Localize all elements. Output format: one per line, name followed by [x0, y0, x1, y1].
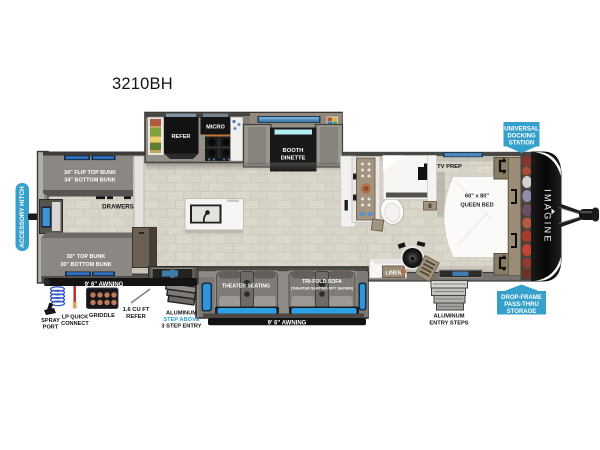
svg-text:ACCESSORY HITCH: ACCESSORY HITCH — [19, 186, 26, 248]
svg-text:60" x 80": 60" x 80" — [465, 194, 489, 200]
svg-text:LP QUICK: LP QUICK — [62, 315, 89, 321]
svg-text:ALUMINUM: ALUMINUM — [434, 314, 465, 320]
svg-text:ALUMINUM: ALUMINUM — [166, 311, 197, 317]
svg-text:30" TOP BUNK: 30" TOP BUNK — [67, 254, 106, 260]
svg-text:DRAWERS: DRAWERS — [102, 204, 134, 211]
svg-text:PASS-THRU: PASS-THRU — [504, 302, 539, 308]
svg-text:30" BOTTOM BUNK: 30" BOTTOM BUNK — [60, 262, 111, 268]
svg-text:THEATER SEATING: THEATER SEATING — [222, 284, 270, 290]
svg-text:LINEN: LINEN — [385, 271, 401, 277]
svg-text:UNIVERSAL: UNIVERSAL — [504, 127, 539, 133]
svg-text:STORAGE: STORAGE — [507, 309, 537, 315]
svg-text:TRI-FOLD SOFA: TRI-FOLD SOFA — [302, 279, 342, 285]
svg-text:34" FLIP TOP BUNK: 34" FLIP TOP BUNK — [64, 170, 116, 176]
svg-text:ENTRY STEPS: ENTRY STEPS — [429, 320, 468, 326]
svg-text:DROP-FRAME: DROP-FRAME — [501, 295, 542, 301]
svg-text:9' 6" AWNING: 9' 6" AWNING — [268, 321, 307, 327]
svg-text:DOCKING: DOCKING — [507, 134, 536, 140]
svg-text:STATION: STATION — [509, 141, 534, 147]
svg-text:IMAGINE: IMAGINE — [543, 189, 553, 244]
svg-text:GRIDDLE: GRIDDLE — [89, 313, 115, 319]
svg-text:REFER: REFER — [172, 134, 191, 140]
svg-text:CONNECT: CONNECT — [61, 321, 89, 327]
svg-text:PORT: PORT — [43, 325, 59, 331]
svg-text:STEP ABOVE: STEP ABOVE — [163, 317, 200, 323]
svg-text:MICRO: MICRO — [206, 125, 225, 131]
svg-text:34" BOTTOM BUNK: 34" BOTTOM BUNK — [64, 178, 115, 184]
svg-text:9' 6" AWNING: 9' 6" AWNING — [85, 282, 124, 288]
svg-text:3210BH: 3210BH — [112, 75, 173, 93]
svg-text:REFER: REFER — [126, 314, 146, 320]
svg-text:SPRAY: SPRAY — [41, 318, 60, 324]
svg-text:3 STEP ENTRY: 3 STEP ENTRY — [161, 324, 201, 330]
svg-text:QUEEN BED: QUEEN BED — [460, 203, 493, 209]
svg-text:DINETTE: DINETTE — [281, 156, 306, 162]
svg-text:TV PREP: TV PREP — [437, 164, 462, 170]
svg-text:1.6 CU FT: 1.6 CU FT — [123, 307, 150, 313]
svg-text:(THEATER SEATING OPT SHOWN): (THEATER SEATING OPT SHOWN) — [291, 287, 354, 291]
svg-text:BOOTH: BOOTH — [283, 148, 304, 154]
